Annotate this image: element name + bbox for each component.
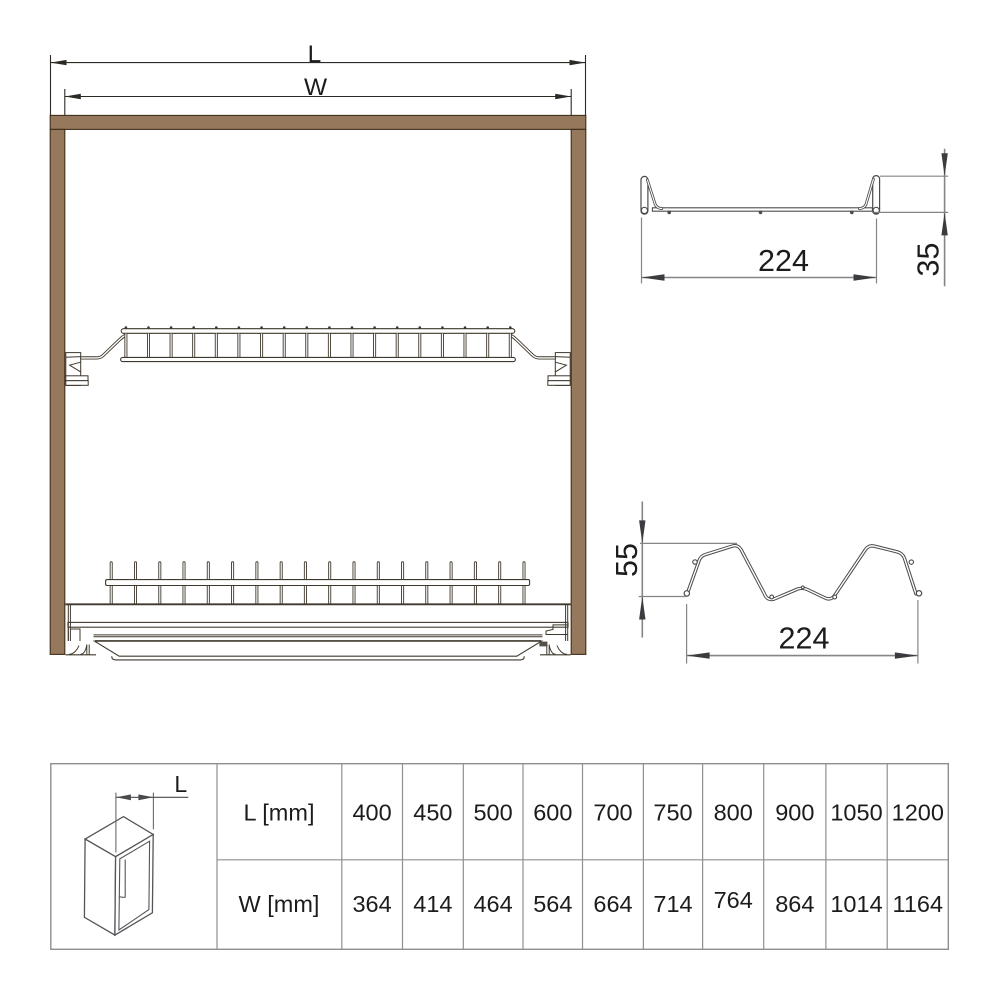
svg-text:714: 714 xyxy=(653,891,692,917)
svg-text:764: 764 xyxy=(714,887,753,913)
svg-text:364: 364 xyxy=(352,891,391,917)
svg-text:450: 450 xyxy=(413,800,452,826)
svg-text:414: 414 xyxy=(413,891,452,917)
svg-text:600: 600 xyxy=(533,800,572,826)
svg-text:900: 900 xyxy=(775,800,814,826)
svg-text:800: 800 xyxy=(714,800,753,826)
svg-text:224: 224 xyxy=(758,244,809,278)
svg-text:1014: 1014 xyxy=(830,891,882,917)
svg-text:35: 35 xyxy=(912,243,946,277)
svg-text:700: 700 xyxy=(593,800,632,826)
svg-text:L: L xyxy=(174,771,187,797)
svg-text:1050: 1050 xyxy=(830,800,882,826)
svg-text:55: 55 xyxy=(610,543,644,577)
svg-text:464: 464 xyxy=(473,891,512,917)
svg-text:L [mm]: L [mm] xyxy=(244,800,315,826)
svg-text:1164: 1164 xyxy=(893,891,944,917)
svg-text:L: L xyxy=(308,41,322,68)
svg-text:224: 224 xyxy=(779,621,830,655)
svg-text:750: 750 xyxy=(653,800,692,826)
svg-text:564: 564 xyxy=(533,891,572,917)
svg-text:400: 400 xyxy=(352,800,391,826)
svg-text:864: 864 xyxy=(775,891,814,917)
svg-text:W [mm]: W [mm] xyxy=(239,891,320,917)
svg-text:1200: 1200 xyxy=(892,800,944,826)
svg-text:W: W xyxy=(304,74,328,101)
svg-text:664: 664 xyxy=(593,891,632,917)
svg-text:500: 500 xyxy=(473,800,512,826)
